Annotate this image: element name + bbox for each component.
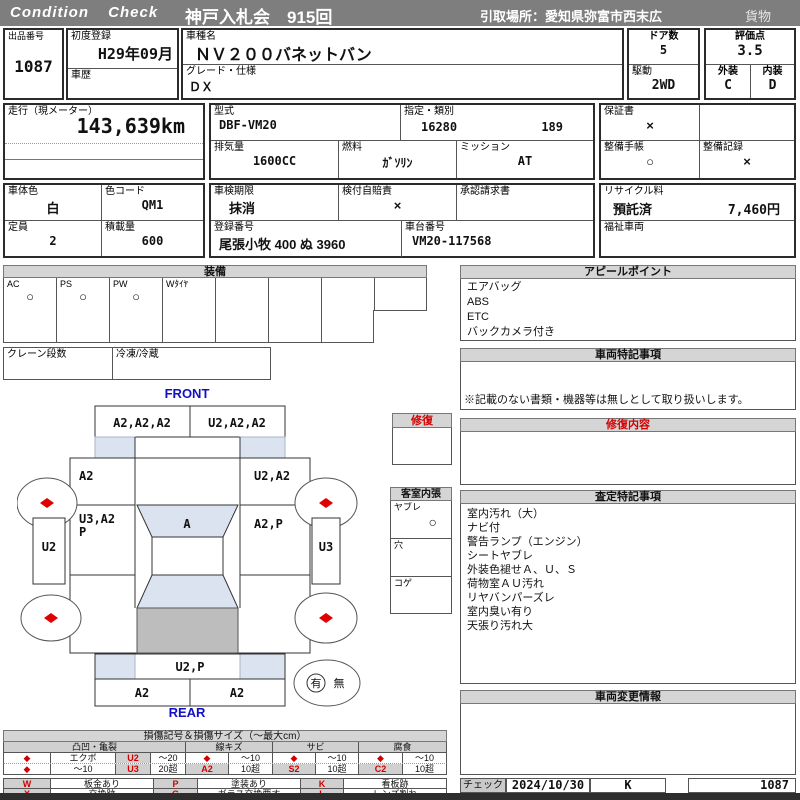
rear-window-shape: [137, 575, 238, 608]
equipment-cell-empty: [163, 310, 216, 342]
reefer-label: 冷凍/冷蔵: [113, 348, 270, 361]
left-door-marks: U3,A2: [79, 512, 115, 526]
equipment-cell-empty: [110, 310, 163, 342]
capacity-label: 定員: [5, 221, 101, 234]
insurance-label: 検付自賠責: [339, 185, 456, 198]
color-code-label: 色コード: [102, 185, 203, 198]
warranty-value: ×: [601, 118, 699, 133]
lot-number-box: 出品番号 1087: [3, 28, 64, 100]
assessment-item: 室内汚れ（大）: [461, 507, 795, 521]
legend-size: ～10: [403, 753, 446, 763]
legend-header-row: 凸凹・亀裂 線キズ サビ 腐食: [3, 742, 447, 753]
assessment-notes-title: 査定特記事項: [460, 490, 796, 504]
model-name-value: ＮＶ２００バネットバン: [195, 41, 622, 65]
exterior-grade-label: 外装: [706, 65, 750, 78]
legend-code: S2: [273, 764, 316, 774]
auction-sheet: Condition Check 神戸入札会 915回 引取場所：愛知県弥富市西末…: [0, 0, 800, 800]
grade-label: グレード・仕様: [183, 65, 622, 78]
assessment-item: 荷物室ＡＵ汚れ: [461, 577, 795, 591]
appeal-item: エアバッグ: [461, 280, 795, 295]
crane-box: クレーン段数: [3, 347, 113, 380]
equipment-row-1: AC○ PS○ PW○ Wﾀｲﾔ: [3, 278, 427, 311]
assessment-notes-body: 室内汚れ（大） ナビ付 警告ランプ（エンジン） シートヤブレ 外装色褪せＡ、Ｕ、…: [460, 504, 796, 684]
rear-panel-right-marks: A2: [230, 686, 244, 700]
interior-hole-label: 穴: [391, 539, 451, 552]
equipment-cell-empty: [216, 278, 269, 310]
body-color-value: 白: [5, 198, 101, 217]
appeal-item: ABS: [461, 295, 795, 310]
interior-box-title: 客室内張: [390, 487, 452, 501]
inspection-expiry-value: 抹消: [211, 198, 338, 217]
insurance-value: ×: [339, 198, 456, 213]
registration-number-label: 登録番号: [211, 221, 401, 234]
equipment-cell-empty: [375, 278, 426, 310]
equipment-mark: ○: [110, 289, 162, 304]
legend-size: 10超: [403, 764, 446, 774]
legend-dent-header: 凸凹・亀裂: [4, 742, 186, 752]
chassis-number-value: VM20-117568: [402, 234, 593, 248]
rear-panel-left-marks: A2: [135, 686, 149, 700]
equipment-row-2: [3, 310, 374, 343]
front-panel-right-marks: U2,A2,A2: [208, 416, 266, 430]
check-lot-number: 1087: [760, 778, 789, 792]
damage-legend: 損傷記号＆損傷サイズ（～最大cm） 凸凹・亀裂 線キズ サビ 腐食 ◆ エクボ …: [3, 730, 447, 800]
displacement-label: 排気量: [211, 141, 338, 154]
doors-label: ドア数: [629, 30, 698, 43]
assessment-item: 警告ランプ（エンジン）: [461, 535, 795, 549]
presence-no: 無: [334, 676, 345, 690]
inspection-registration-box: 車検期限 抹消 検付自賠責 × 承認請求書 登録番号 尾張小牧 400 ぬ 39…: [209, 183, 595, 258]
legend-size: ～10: [229, 753, 273, 763]
vehicle-notes-title: 車両特記事項: [460, 348, 796, 362]
check-lot-cell: 1087: [688, 778, 796, 793]
interior-tear-mark: ○: [391, 514, 451, 530]
model-name-box: 車種名 ＮＶ２００バネットバン グレード・仕様 ＤＸ: [181, 28, 624, 100]
chassis-number-label: 車台番号: [402, 221, 593, 234]
crane-label: クレーン段数: [4, 348, 112, 361]
legend-scratch-header: 線キズ: [186, 742, 273, 752]
legend-size: 20超: [151, 764, 186, 774]
engine-box: 型式 DBF-VM20 指定・類別 16280 189 排気量 1600CC 燃…: [209, 103, 595, 180]
legend-code: U2: [116, 753, 151, 763]
diamond-icon: ◆: [273, 753, 316, 763]
inspection-expiry-label: 車検期限: [211, 185, 338, 198]
approval-request-label: 承認請求書: [457, 185, 593, 198]
legend-code: U3: [116, 764, 151, 774]
mileage-box: 走行（現メーター） 143,639km: [3, 103, 205, 180]
first-registration-value: H29年09月: [68, 43, 177, 64]
capacity-value: 2: [5, 234, 101, 248]
model-code-label: 型式: [211, 105, 400, 118]
maintenance-record-label: 整備記録: [700, 141, 794, 154]
fuel-label: 燃料: [339, 141, 456, 154]
front-panel-left-marks: A2,A2,A2: [113, 416, 171, 430]
vehicle-category: 貨物: [745, 6, 771, 25]
equipment-cell-empty: [322, 278, 375, 310]
diamond-icon: ◆: [359, 753, 403, 763]
first-registration-label: 初度登録: [68, 30, 177, 43]
legend-symbol-desc: 板金あり: [51, 779, 154, 788]
interior-grade-value: D: [751, 78, 794, 93]
check-inspector-cell: K: [590, 778, 666, 793]
model-code-value: DBF-VM20: [211, 118, 400, 132]
interior-hole-cell: 穴: [390, 539, 452, 577]
doors-value: 5: [629, 43, 698, 57]
appeal-body: エアバッグ ABS ETC バックカメラ付き: [460, 279, 796, 341]
diamond-icon: ◆: [186, 753, 229, 763]
mileage-empty-row: [5, 144, 203, 160]
type-class-label: 指定・類別: [401, 105, 593, 118]
appeal-title: アピールポイント: [460, 265, 796, 279]
check-date-cell: 2024/10/30: [506, 778, 590, 793]
repair-box-body: [392, 428, 452, 465]
equipment-title: 装備: [3, 265, 427, 278]
load-value: 600: [102, 234, 203, 248]
legend-dent-name: エクボ: [51, 753, 116, 763]
maintenance-book-label: 整備手帳: [601, 141, 699, 154]
recycle-box: リサイクル料 預託済 7,460円 福祉車両: [599, 183, 796, 258]
equipment-cell-empty: [216, 310, 269, 342]
legend-size: ～10: [51, 764, 116, 774]
color-capacity-box: 車体色 白 色コード QM1 定員 2 積載量 600: [3, 183, 205, 258]
vehicle-notes-disclaimer: ※記載のない書類・機器等は無しとして取り扱いします。: [464, 391, 749, 407]
header-bar: Condition Check 神戸入札会 915回 引取場所：愛知県弥富市西末…: [0, 0, 800, 26]
history-label: 車歴: [68, 69, 177, 82]
lot-number-value: 1087: [5, 57, 62, 76]
warranty-label: 保証書: [601, 105, 699, 118]
legend-size: ～10: [316, 753, 359, 763]
windshield-corner-left: [95, 437, 135, 458]
presence-circle: [294, 660, 360, 706]
change-info-body: [460, 704, 796, 775]
rear-label: REAR: [169, 705, 206, 720]
legend-symbol-code: P: [154, 779, 198, 788]
class-number-value: 189: [541, 120, 563, 134]
transmission-label: ミッション: [457, 141, 593, 154]
lot-number-label: 出品番号: [5, 30, 62, 43]
doors-drive-box: ドア数 5 駆動 2WD: [627, 28, 700, 100]
legend-symbol-code: K: [301, 779, 344, 788]
interior-grade-label: 内装: [751, 65, 794, 78]
legend-code: A2: [186, 764, 229, 774]
change-info-title: 車両変更情報: [460, 690, 796, 704]
left-fender-marks: A2: [79, 469, 93, 483]
vehicle-notes-body: ※記載のない書類・機器等は無しとして取り扱いします。: [460, 362, 796, 410]
documents-box: 保証書 × 整備手帳 ○ 整備記録 ×: [599, 103, 796, 180]
recycle-label: リサイクル料: [601, 185, 794, 198]
assessment-item: 天張り汚れ大: [461, 619, 795, 633]
assessment-item: シートヤブレ: [461, 549, 795, 563]
legend-title: 損傷記号＆損傷サイズ（～最大cm）: [3, 730, 447, 742]
repair-box-title: 修復: [392, 413, 452, 428]
bottom-edge-bar: [0, 793, 800, 800]
legend-size: ～20: [151, 753, 186, 763]
load-label: 積載量: [102, 221, 203, 234]
right-door-marks: A2,P: [254, 517, 283, 531]
mileage-value: 143,639km: [5, 114, 203, 138]
check-label: チェック: [463, 780, 503, 791]
legend-size: 10超: [229, 764, 273, 774]
equipment-label: Wﾀｲﾔ: [163, 278, 215, 291]
pickup-location: 引取場所：愛知県弥富市西末広: [480, 6, 662, 25]
left-door-marks-2: P: [79, 525, 86, 539]
legend-size-row-1: ◆ エクボ U2 ～20 ◆ ～10 ◆ ～10 ◆ ～10: [3, 753, 447, 764]
legend-rust-header: サビ: [273, 742, 359, 752]
registration-number-value: 尾張小牧 400 ぬ 3960: [211, 234, 401, 253]
front-label: FRONT: [165, 386, 210, 401]
right-sill-mark: U3: [319, 540, 333, 554]
check-label-cell: チェック: [460, 778, 506, 793]
windshield-mark: A: [183, 517, 191, 531]
legend-symbol-code: W: [4, 779, 51, 788]
legend-symbol-row-1: W 板金あり P 塗装あり K 看板跡: [3, 778, 447, 789]
equipment-mark: ○: [57, 289, 109, 304]
body-color-label: 車体色: [5, 185, 101, 198]
diamond-icon: ◆: [4, 764, 51, 774]
type-number-value: 16280: [421, 120, 457, 134]
left-sill-mark: U2: [42, 540, 56, 554]
displacement-value: 1600CC: [211, 154, 338, 168]
check-date: 2024/10/30: [512, 778, 584, 792]
appeal-item: バックカメラ付き: [461, 325, 795, 340]
exterior-grade-value: C: [706, 78, 750, 93]
interior-tear-cell: ヤブレ ○: [390, 501, 452, 539]
presence-yes: 有: [311, 676, 322, 690]
right-fender-marks: U2,A2: [254, 469, 290, 483]
legend-symbol-desc: 看板跡: [344, 779, 446, 788]
assessment-item: リヤバンパーズレ: [461, 591, 795, 605]
legend-code: C2: [359, 764, 403, 774]
equipment-mark: ○: [4, 289, 56, 304]
equipment-cell-empty: [269, 278, 322, 310]
rear-gate-corner-left: [95, 654, 135, 679]
documents-empty-cell: [700, 105, 794, 140]
score-label: 評価点: [706, 30, 794, 43]
auction-title: 神戸入札会 915回: [185, 3, 332, 28]
legend-size-row-2: ◆ ～10 U3 20超 A2 10超 S2 10超 C2 10超: [3, 764, 447, 775]
equipment-cell-empty: [322, 310, 373, 342]
rear-gate-corner-right: [240, 654, 285, 679]
maintenance-record-value: ×: [700, 154, 794, 169]
score-box: 評価点 3.5 外装 C 内装 D: [704, 28, 796, 100]
fuel-value: ｶﾞｿﾘﾝ: [339, 154, 456, 171]
legend-symbol-desc: 塗装あり: [198, 779, 301, 788]
assessment-item: 外装色褪せＡ、Ｕ、Ｓ: [461, 563, 795, 577]
recycle-status: 預託済: [613, 199, 652, 218]
brand-logo: Condition Check: [10, 4, 158, 21]
reefer-box: 冷凍/冷蔵: [113, 347, 271, 380]
cargo-roof: [137, 608, 238, 653]
welfare-label: 福祉車両: [601, 221, 794, 234]
drive-value: 2WD: [629, 78, 698, 93]
legend-size: 10超: [316, 764, 359, 774]
assessment-item: 室内臭い有り: [461, 605, 795, 619]
windshield-corner-right: [240, 437, 285, 458]
drive-label: 駆動: [629, 65, 698, 78]
interior-burn-label: コゲ: [391, 577, 451, 590]
diamond-icon: ◆: [4, 753, 51, 763]
check-inspector: K: [624, 778, 631, 792]
legend-corrosion-header: 腐食: [359, 742, 446, 752]
car-damage-diagram: FRONT: [17, 386, 362, 720]
equipment-cell-empty: [269, 310, 322, 342]
interior-tear-label: ヤブレ: [391, 501, 451, 514]
assessment-item: ナビ付: [461, 521, 795, 535]
maintenance-book-value: ○: [601, 154, 699, 169]
appeal-item: ETC: [461, 310, 795, 325]
cabin-roof: [152, 537, 223, 575]
interior-burn-cell: コゲ: [390, 577, 452, 614]
equipment-cell-empty: [4, 310, 57, 342]
color-code-value: QM1: [102, 198, 203, 212]
recycle-fee: 7,460円: [728, 199, 780, 218]
transmission-value: AT: [457, 154, 593, 168]
rear-gate-marks: U2,P: [176, 660, 205, 674]
repair-details-title: 修復内容: [460, 418, 796, 432]
score-value: 3.5: [706, 43, 794, 59]
registration-history-box: 初度登録 H29年09月 車歴: [66, 28, 179, 100]
grade-value: ＤＸ: [189, 78, 622, 95]
repair-details-body: [460, 432, 796, 485]
equipment-cell-empty: [57, 310, 110, 342]
